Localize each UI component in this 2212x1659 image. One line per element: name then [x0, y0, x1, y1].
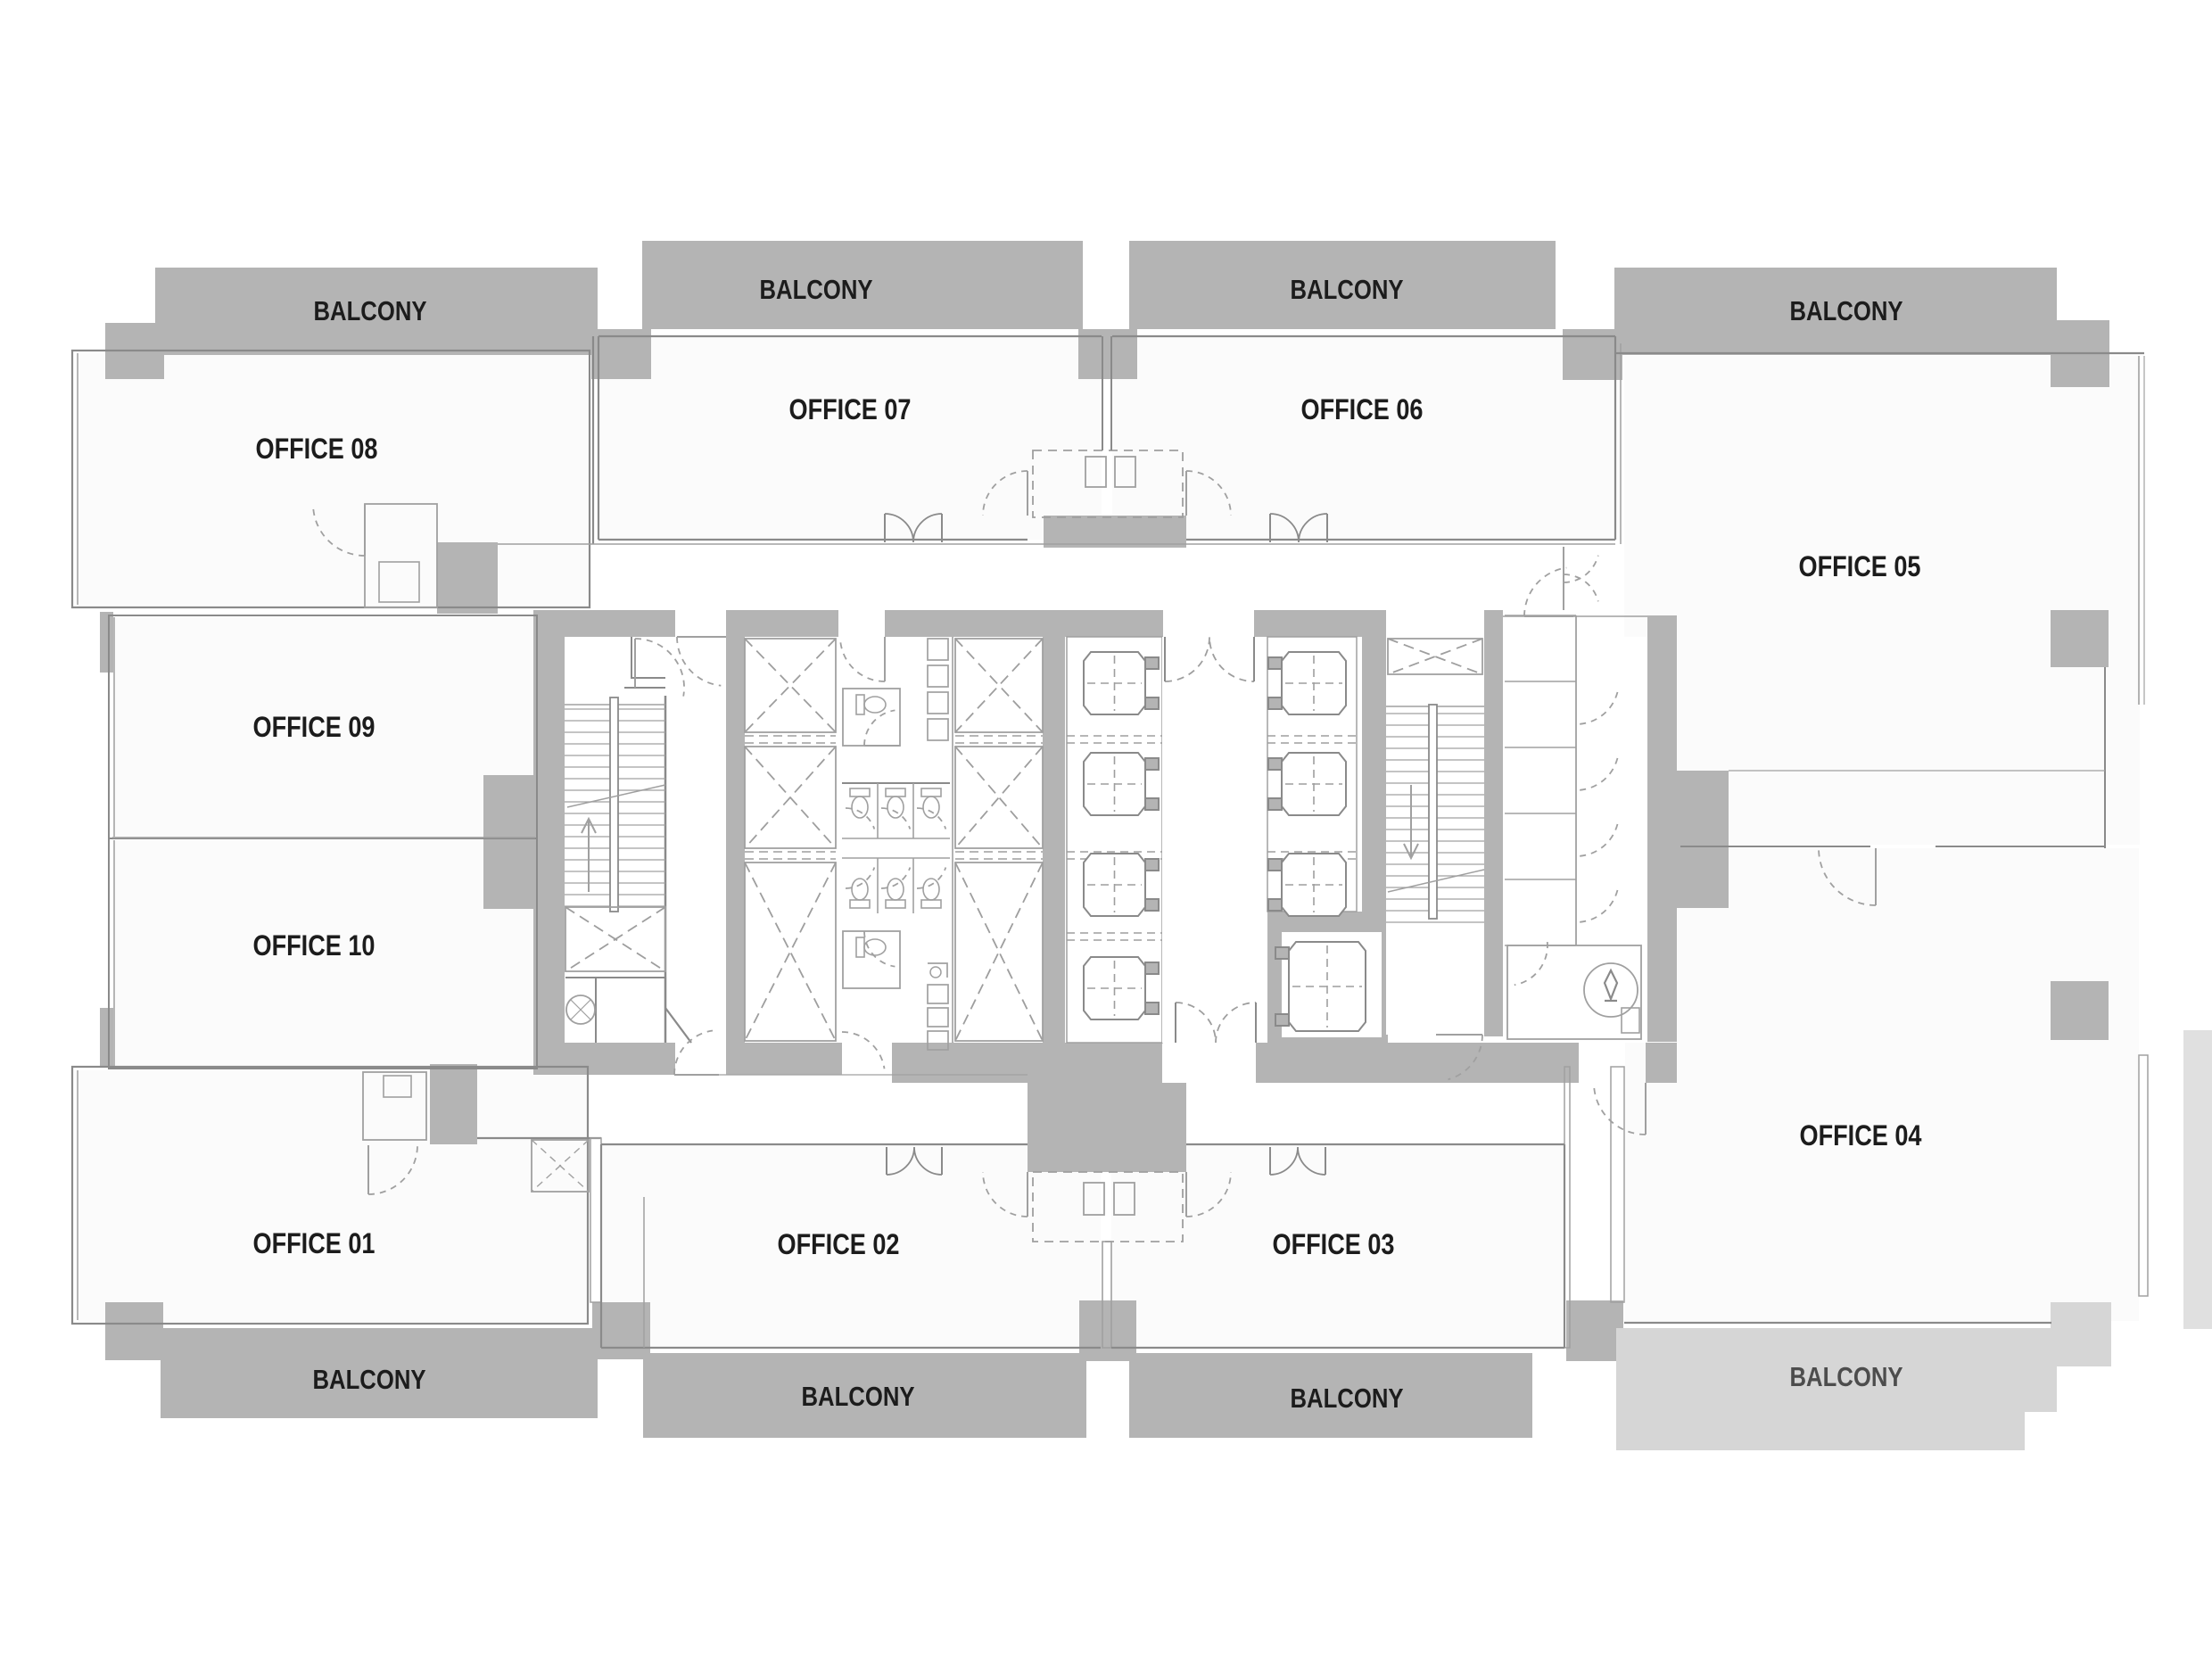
- svg-text:BALCONY: BALCONY: [1790, 1361, 1903, 1392]
- svg-text:OFFICE 10: OFFICE 10: [253, 929, 376, 962]
- svg-text:BALCONY: BALCONY: [313, 1364, 426, 1395]
- svg-text:BALCONY: BALCONY: [760, 274, 873, 305]
- svg-text:OFFICE 07: OFFICE 07: [789, 393, 912, 425]
- svg-text:BALCONY: BALCONY: [1790, 295, 1903, 326]
- svg-text:OFFICE 09: OFFICE 09: [253, 711, 376, 743]
- svg-text:OFFICE 03: OFFICE 03: [1273, 1228, 1395, 1260]
- svg-text:BALCONY: BALCONY: [802, 1381, 915, 1412]
- svg-text:OFFICE 06: OFFICE 06: [1301, 393, 1424, 425]
- svg-text:OFFICE 05: OFFICE 05: [1799, 550, 1921, 582]
- svg-text:BALCONY: BALCONY: [1291, 1382, 1404, 1414]
- svg-text:OFFICE 02: OFFICE 02: [778, 1228, 900, 1260]
- svg-text:OFFICE 04: OFFICE 04: [1800, 1119, 1922, 1151]
- svg-text:BALCONY: BALCONY: [1291, 274, 1404, 305]
- svg-text:OFFICE 01: OFFICE 01: [253, 1227, 376, 1259]
- svg-text:OFFICE 08: OFFICE 08: [256, 433, 378, 465]
- svg-text:BALCONY: BALCONY: [314, 295, 427, 326]
